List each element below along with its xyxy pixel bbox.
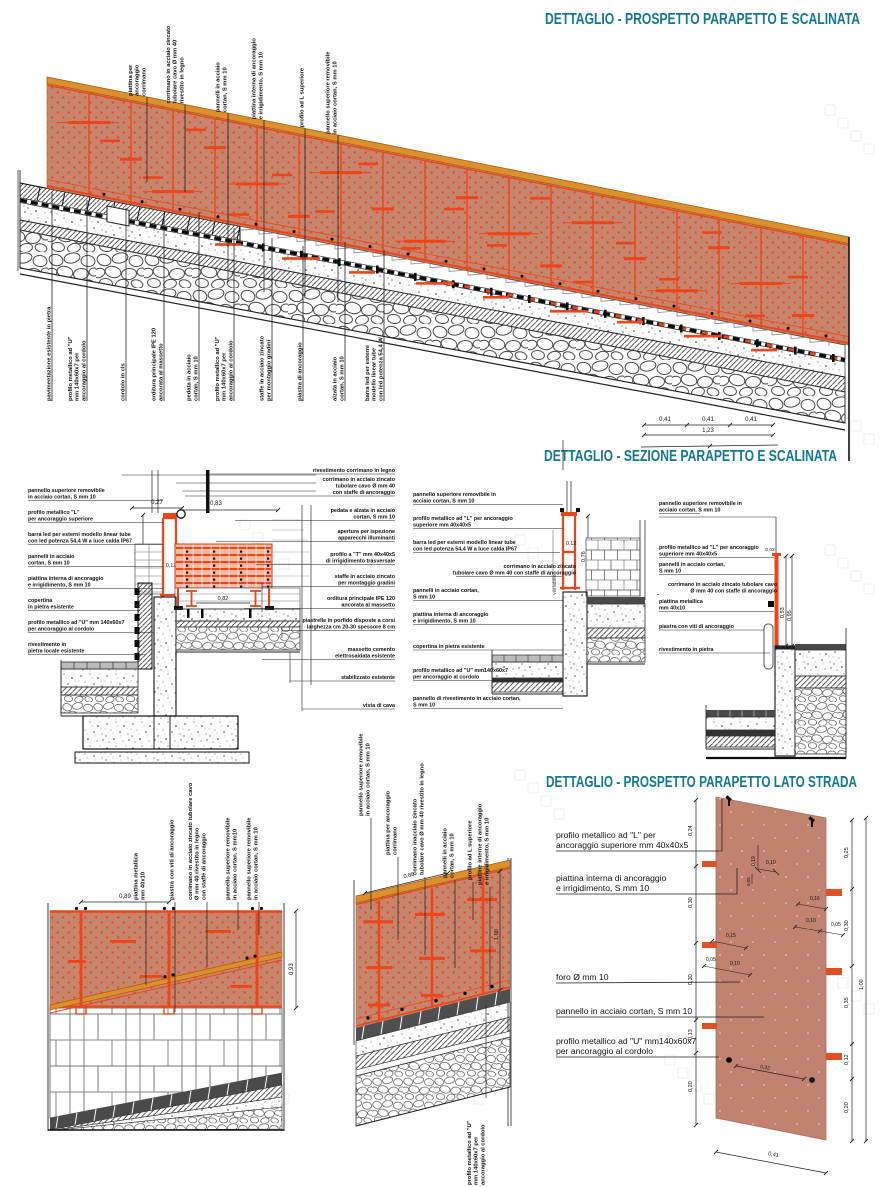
svg-text:piattina interna di ancoraggio: piattina interna di ancoraggio [556, 873, 667, 883]
svg-text:pannello superiore removibile: pannello superiore removibile in [659, 501, 742, 507]
svg-text:0,30: 0,30 [688, 974, 694, 985]
svg-text:elettrosaldata esistente: elettrosaldata esistente [335, 654, 395, 660]
svg-text:staffe in acciaio zincato: staffe in acciaio zincato [334, 574, 395, 580]
svg-text:con staffe di ancoraggio: con staffe di ancoraggio [333, 490, 396, 496]
svg-text:per ancoraggio al cordolo: per ancoraggio al cordolo [556, 1046, 653, 1056]
svg-text:0,05: 0,05 [706, 957, 716, 963]
svg-text:piattina interna di ancoraggio: piattina interna di ancoraggio [252, 38, 258, 120]
svg-text:corrimano in acciaio zincato: corrimano in acciaio zincato [504, 564, 577, 570]
svg-text:pedata in acciaio: pedata in acciaio [187, 354, 193, 401]
svg-text:0,27: 0,27 [151, 500, 163, 506]
svg-text:tubolare cavo Ø mm 40 rivestit: tubolare cavo Ø mm 40 rivestito in legno [420, 763, 426, 875]
svg-text:0,89: 0,89 [119, 894, 131, 900]
svg-text:profilo metallico ad "U": profilo metallico ad "U" [467, 1120, 473, 1185]
svg-text:0,83: 0,83 [210, 501, 222, 507]
svg-text:0,41: 0,41 [702, 417, 714, 423]
svg-text:cortan, S mm 10: cortan, S mm 10 [450, 833, 456, 878]
svg-text:pannello superiore removibile: pannello superiore removibile [28, 488, 105, 494]
svg-text:0,05: 0,05 [746, 877, 751, 886]
svg-text:cortan, S mm 10: cortan, S mm 10 [28, 561, 70, 567]
svg-text:in pietra esistente: in pietra esistente [28, 605, 74, 611]
svg-text:larghezza cm 20-30 spessore 8: larghezza cm 20-30 spessore 8 cm [307, 625, 395, 631]
svg-text:orditura principale IPE 120: orditura principale IPE 120 [152, 328, 158, 401]
svg-text:0,20: 0,20 [688, 1081, 694, 1092]
svg-text:profilo metallico ad "L" per a: profilo metallico ad "L" per ancoraggio [413, 516, 513, 522]
svg-text:S mm 10: S mm 10 [413, 595, 435, 601]
svg-text:copertina in pietra esistente: copertina in pietra esistente [413, 644, 485, 650]
svg-text:pietra locale esistente: pietra locale esistente [28, 649, 84, 655]
svg-text:0,95: 0,95 [787, 610, 793, 621]
svg-text:copertina: copertina [28, 598, 53, 604]
svg-text:ancoraggio: ancoraggio [135, 64, 141, 96]
svg-text:0,19: 0,19 [751, 856, 757, 866]
svg-text:0,16: 0,16 [810, 896, 820, 902]
svg-text:profilo metallico ad "L" per a: profilo metallico ad "L" per ancoraggio [659, 545, 759, 551]
svg-text:pannelli in acciaio cortan,: pannelli in acciaio cortan, [413, 588, 479, 594]
svg-text:apparecchi illuminanti: apparecchi illuminanti [338, 536, 395, 542]
svg-text:per ancoraggio al cordolo: per ancoraggio al cordolo [28, 627, 95, 633]
svg-text:DETTAGLIO - PROSPETTO PARAPET: DETTAGLIO - PROSPETTO PARAPETTO E SCALIN… [545, 11, 860, 28]
svg-text:profilo metallico ad "U" mm140: profilo metallico ad "U" mm140x60x7 [556, 1036, 697, 1046]
svg-text:mm 40x10: mm 40x10 [141, 872, 147, 900]
svg-text:0,30: 0,30 [844, 920, 850, 931]
svg-text:piattina metallica: piattina metallica [134, 852, 140, 900]
svg-text:pannello superiore removibile: pannello superiore removibile [247, 817, 253, 900]
svg-text:piattine interne di ancoraggio: piattine interne di ancoraggio [478, 803, 484, 885]
svg-text:profilo ad L superiore: profilo ad L superiore [468, 820, 474, 880]
svg-text:pannello superiore removibile: pannello superiore removibile in [413, 492, 496, 498]
svg-text:piattina interna di ancoraggio: piattina interna di ancoraggio [413, 612, 489, 618]
svg-text:piattina metallica: piattina metallica [659, 599, 704, 605]
svg-text:e irrigidimento, S mm 10: e irrigidimento, S mm 10 [259, 52, 265, 119]
svg-text:staffe in acciaio zincato: staffe in acciaio zincato [260, 335, 266, 401]
svg-text:barra led per esterni modello: barra led per esterni modello linear tub… [413, 540, 516, 546]
svg-text:pannello superiore removibile: pannello superiore removibile [326, 51, 332, 134]
svg-text:0,41: 0,41 [745, 417, 757, 423]
svg-text:e irrigidimento, S mm 10: e irrigidimento, S mm 10 [556, 883, 649, 893]
svg-text:pannello superiore removibile: pannello superiore removibile [226, 817, 232, 900]
svg-text:rivestito in legno: rivestito in legno [180, 57, 186, 104]
svg-text:1,23: 1,23 [702, 428, 714, 434]
svg-text:e irrigidimento, S mm 10: e irrigidimento, S mm 10 [485, 818, 491, 885]
svg-text:barra led per esterni modello: barra led per esterni modello linear tub… [28, 532, 131, 538]
svg-text:1,00: 1,00 [494, 929, 500, 940]
svg-text:piattina per ancoraggio: piattina per ancoraggio [386, 790, 392, 855]
svg-text:1,00: 1,00 [859, 979, 865, 990]
svg-text:profilo metallico ad "L" per: profilo metallico ad "L" per [556, 830, 656, 840]
svg-text:in acciaio cortan, S mm 10: in acciaio cortan, S mm 10 [254, 827, 260, 900]
svg-text:con led potenza 54,4 W a luce: con led potenza 54,4 W a luce calda IP67 [28, 539, 132, 545]
svg-text:0,15: 0,15 [726, 933, 736, 939]
svg-text:pannello di rivestimento in ac: pannello di rivestimento in acciaio cort… [413, 696, 521, 702]
svg-text:corrimano: corrimano [393, 826, 399, 855]
svg-text:mm 140x60x7 per: mm 140x60x7 per [75, 352, 81, 401]
svg-text:in acciaio cortan, S mm 10: in acciaio cortan, S mm 10 [28, 495, 96, 501]
svg-text:foro Ø mm 10: foro Ø mm 10 [556, 972, 609, 982]
svg-text:0,25: 0,25 [844, 847, 850, 858]
svg-text:DETTAGLIO - SEZIONE PARAPETTO: DETTAGLIO - SEZIONE PARAPETTO E SCALINAT… [544, 448, 837, 465]
svg-text:mm 40x10: mm 40x10 [659, 606, 685, 612]
svg-text:0,24: 0,24 [688, 825, 694, 836]
svg-text:massetto cemento: massetto cemento [348, 647, 396, 653]
svg-text:0,10: 0,10 [730, 961, 740, 967]
svg-text:Ø mm 40 rivestito in legno: Ø mm 40 rivestito in legno [195, 827, 201, 900]
svg-text:corrimano in acciaio zincato: corrimano in acciaio zincato [166, 25, 172, 103]
svg-text:piastra con viti di ancoraggio: piastra con viti di ancoraggio [170, 819, 176, 900]
svg-text:per ancoraggio superiore: per ancoraggio superiore [28, 517, 93, 523]
svg-text:ancoraggio al cordolo: ancoraggio al cordolo [481, 1124, 487, 1185]
svg-text:corrimano inacciaio zincato: corrimano inacciaio zincato [413, 798, 419, 875]
svg-text:profilo metallico ad "U" mm 14: profilo metallico ad "U" mm 140x60x7 [28, 620, 125, 626]
svg-text:pannello superiore removibile: pannello superiore removibile [359, 733, 365, 816]
svg-text:apertura per ispezione: apertura per ispezione [337, 529, 395, 535]
svg-text:profilo metallico ad "U": profilo metallico ad "U" [68, 336, 74, 401]
svg-text:pannelli in acciaio: pannelli in acciaio [216, 62, 222, 112]
svg-text:tubolare cavo Ø mm 40: tubolare cavo Ø mm 40 [173, 40, 179, 104]
svg-text:in acciaio cortan, S mm 10: in acciaio cortan, S mm 10 [366, 743, 372, 816]
svg-text:0,30: 0,30 [688, 897, 694, 908]
svg-text:in acciaio cortan, S mm 10: in acciaio cortan, S mm 10 [333, 61, 339, 134]
svg-text:mm 140x60x7 per: mm 140x60x7 per [474, 1136, 480, 1185]
svg-text:0,10: 0,10 [806, 918, 816, 924]
svg-text:acciaio cortan, S mm 10: acciaio cortan, S mm 10 [659, 508, 720, 514]
svg-text:DETTAGLIO - PROSPETTO PARAPETT: DETTAGLIO - PROSPETTO PARAPETTO LATO STR… [546, 774, 857, 791]
svg-text:0,10: 0,10 [766, 860, 776, 866]
svg-text:ancorata al massetto: ancorata al massetto [341, 603, 395, 609]
svg-text:cortan, S mm 10: cortan, S mm 10 [353, 515, 395, 521]
svg-text:di irrigidimento trasversale: di irrigidimento trasversale [326, 559, 395, 565]
svg-text:ancoraggio superiore mm 40x40x: ancoraggio superiore mm 40x40x5 [556, 840, 689, 850]
svg-text:superiore mm 40x40x5: superiore mm 40x40x5 [413, 523, 471, 529]
svg-text:con staffe di ancoraggio: con staffe di ancoraggio [202, 833, 208, 900]
svg-text:0,93: 0,93 [780, 607, 786, 618]
svg-text:pannello in acciaio cortan, S: pannello in acciaio cortan, S mm 10 [556, 1006, 692, 1016]
svg-text:superiore mm 40x40x5: superiore mm 40x40x5 [659, 552, 717, 558]
svg-text:0,12: 0,12 [566, 541, 576, 547]
svg-text:0,35: 0,35 [844, 997, 850, 1008]
svg-text:corrimano in acciaio zincato t: corrimano in acciaio zincato tubolare ca… [188, 782, 194, 900]
svg-text:pannelli in acciaio: pannelli in acciaio [28, 554, 75, 560]
svg-text:per ancoraggio al cordolo: per ancoraggio al cordolo [413, 675, 480, 681]
svg-text:per montaggio gradini: per montaggio gradini [338, 581, 395, 587]
svg-text:0,93: 0,93 [289, 963, 295, 975]
svg-text:piastra con viti di ancoraggio: piastra con viti di ancoraggio [659, 624, 735, 630]
svg-text:pedata e alzata in acciaio: pedata e alzata in acciaio [331, 508, 396, 514]
svg-text:profilo metallico ad "U" mm140: profilo metallico ad "U" mm140x60x7 [413, 668, 508, 674]
svg-text:profilo a "T" mm 40x40x5: profilo a "T" mm 40x40x5 [330, 552, 395, 558]
svg-text:tubolare cavo Ø mm 40 con staf: tubolare cavo Ø mm 40 con staffe di anco… [453, 571, 577, 577]
svg-text:rivestimento in: rivestimento in [28, 642, 66, 648]
svg-text:profilo ad L superiore: profilo ad L superiore [300, 67, 306, 127]
svg-text:corrimano in acciaio zincato t: corrimano in acciaio zincato tubolare ca… [668, 582, 778, 588]
svg-text:0,20: 0,20 [844, 1102, 850, 1113]
svg-text:stabilizzato esistente: stabilizzato esistente [341, 675, 395, 681]
svg-text:rivestimento corrimano in legn: rivestimento corrimano in legno [313, 468, 396, 474]
svg-text:corrimano in acciaio zincato: corrimano in acciaio zincato [323, 477, 396, 483]
svg-text:S mm 10: S mm 10 [659, 569, 681, 575]
svg-text:in acciaio cortan, S mm10: in acciaio cortan, S mm10 [233, 829, 239, 900]
svg-text:con led potenza 54,4 W a luce: con led potenza 54,4 W a luce calda IP67 [413, 547, 517, 553]
svg-text:piastrelle in porfido disposte: piastrelle in porfido disposte a corsi [302, 618, 395, 624]
svg-text:e irrigidimento, S mm 10: e irrigidimento, S mm 10 [413, 619, 476, 625]
svg-text:modello linear tube: modello linear tube [372, 347, 378, 401]
svg-text:0,12: 0,12 [844, 1054, 850, 1065]
svg-text:pannelli in acciaio: pannelli in acciaio [443, 828, 449, 878]
svg-text:profilo metallico ad "U": profilo metallico ad "U" [215, 336, 221, 401]
svg-text:cortan, S mm 10: cortan, S mm 10 [223, 67, 229, 112]
svg-text:barra led per esterni: barra led per esterni [365, 345, 371, 401]
svg-text:S mm 10: S mm 10 [413, 703, 435, 709]
svg-text:orditura principale IPE 120: orditura principale IPE 120 [327, 596, 395, 602]
svg-text:e irrigidimento, S mm 10: e irrigidimento, S mm 10 [28, 583, 91, 589]
svg-text:Ø mm 40 con staffe di ancoragg: Ø mm 40 con staffe di ancoraggio [690, 589, 777, 595]
svg-text:pannelli in acciaio cortan,: pannelli in acciaio cortan, [659, 562, 725, 568]
svg-text:piattina per: piattina per [128, 64, 134, 96]
svg-text:0,05: 0,05 [831, 922, 841, 928]
svg-text:tubolare cavo Ø mm 40: tubolare cavo Ø mm 40 [336, 484, 395, 490]
svg-text:0,82: 0,82 [218, 596, 229, 602]
svg-text:piattina interna di ancoraggio: piattina interna di ancoraggio [28, 576, 104, 582]
svg-text:profilo metallico "L": profilo metallico "L" [28, 510, 80, 516]
svg-text:corrimano: corrimano [142, 67, 148, 96]
svg-text:0,03: 0,03 [765, 547, 775, 553]
svg-text:acciaio cortan, S mm 10: acciaio cortan, S mm 10 [413, 499, 474, 505]
svg-text:0,41: 0,41 [659, 417, 671, 423]
svg-text:rivestimento in pietra: rivestimento in pietra [659, 647, 715, 653]
svg-text:mm 140x60x7 per: mm 140x60x7 per [222, 352, 228, 401]
svg-text:alzata in acciaio: alzata in acciaio [333, 356, 339, 401]
svg-text:vista di cava: vista di cava [363, 703, 396, 709]
